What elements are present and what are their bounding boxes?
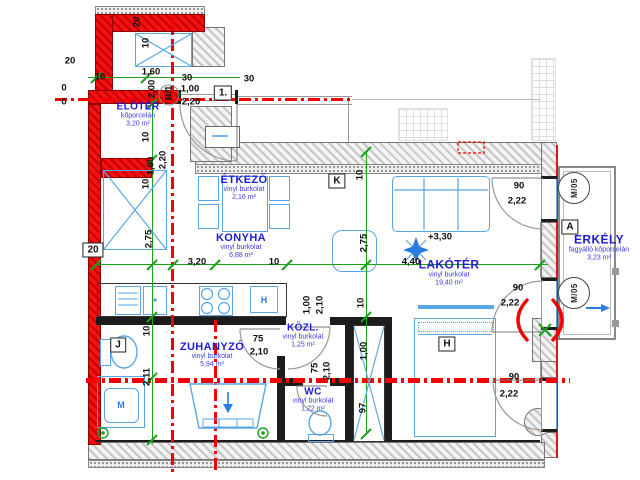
dimension-text: 2,22 [500,389,519,400]
dimension-text: 2,22 [508,196,527,207]
dimension-text: 2,20 [182,97,201,108]
room-label-wc: WCvinyl burkolat1,22 m² [293,387,334,414]
room-area: 19,40 m² [419,280,480,288]
dimension-text: 90 [514,181,525,192]
dimension-text: +3,30 [428,232,452,243]
room-area: 1,22 m² [293,406,334,414]
burner [202,289,213,300]
room-material: vinyl burkolat [180,353,244,361]
dimension-text: 10 [356,298,367,309]
dimension-text: 10 [269,257,280,268]
room-area: 3,20 m² [117,121,160,129]
dimension-text: 1,00 [181,84,200,95]
room-label-erk-ly: ERKÉLYfagyálló kőporcelán3,23 m² [569,233,629,262]
room-label-el-t-r: ELŐTÉRkőporcelán3,20 m² [117,102,160,129]
room-label-lak-t-r: LAKÓTÉRvinyl burkolat19,40 m² [419,258,480,287]
room-area: 1,25 m² [283,342,324,350]
floor-plan: ELŐTÉRkőporcelán3,20 m²ÉTKEZŐvinyl burko… [0,0,640,480]
demolition-arc [518,299,528,341]
dimension-text: 2,10 [315,296,326,315]
room-label-tkez: ÉTKEZŐvinyl burkolat2,16 m² [220,174,267,202]
room-area: 3,23 m² [569,255,629,263]
dimension-text: 2,75 [144,230,155,249]
room-name: ERKÉLY [569,233,629,246]
red-dashed-box [458,142,484,153]
dimension-text: 90 [513,283,524,294]
room-name: WC [293,387,334,398]
dimension-text: 10 [142,326,153,337]
room-material: vinyl burkolat [419,272,480,280]
toilet-wc [309,411,331,435]
room-material: vinyl burkolat [293,398,334,406]
dimension-text: 10 [95,72,106,83]
room-area: 6,88 m² [216,252,266,260]
room-name: ZUHANYZÓ [180,341,244,353]
room-name: KONYHA [216,232,266,244]
dimension-text: 10 [141,179,152,190]
marker-h: H [438,337,455,352]
marker-a: A [561,220,578,235]
shower-arrow-head [223,404,233,413]
marker-m-05: M/05 [558,172,590,204]
dimension-text: 30 [244,74,255,85]
burner [219,303,230,314]
dimension-text: 10 [141,132,152,143]
dimension-text: 20 [132,17,143,28]
dimension-text: 2,20 [158,151,169,170]
entry-door-swing [180,104,237,161]
room-name: LAKÓTÉR [419,258,480,271]
dimension-text: 97 [358,403,369,414]
drain-dot [261,431,265,435]
dimension-text: 20 [65,56,76,67]
room-area: 2,16 m² [220,194,267,202]
dimension-text: B/1 [164,86,175,101]
dimension-text: 2,10 [250,347,269,358]
shower-grate [203,419,253,427]
marker-1: 1. [214,86,232,101]
room-label-zuhanyz: ZUHANYZÓvinyl burkolat5,94 m² [180,341,244,369]
burner [219,289,230,300]
dimension-text: 10 [355,170,366,181]
dimension-text: 30 [182,73,193,84]
balcony-arrow-head [601,304,610,312]
marker-20: 20 [82,243,103,258]
dimension-text: 2,10 [322,362,333,381]
room-area: 5,94 m² [180,361,244,369]
dimension-text: 2,00 [147,80,158,99]
room-name: KÖZL. [283,323,324,334]
dimension-text: 2,11 [142,368,153,386]
dimension-text: 1,00 [359,342,370,361]
room-material: vinyl burkolat [216,244,266,252]
marker-h: H [261,295,268,305]
dimension-text: 10 [141,38,152,49]
marker-m-05: M/05 [558,277,590,309]
marker-m: M [117,400,125,410]
dimension-text: 90 [509,372,520,383]
room-label-konyha: KONYHAvinyl burkolat6,88 m² [216,232,266,260]
dimension-text: 1,00 [302,296,313,315]
dimension-text: 0 [61,83,66,94]
room-material: fagyálló kőporcelán [569,247,629,255]
dimension-text: 1,00 [146,157,157,176]
room-material: vinyl burkolat [220,186,267,194]
dimension-text: 4,40 [402,257,421,268]
dimension-text: 1,60 [142,67,161,78]
cabinet-knob [153,298,157,302]
room-label-k-zl: KÖZL.vinyl burkolat1,25 m² [283,323,324,350]
dimension-text: 2,22 [501,298,520,309]
demolition-arc [552,299,562,341]
room-material: vinyl burkolat [283,334,324,342]
dimension-text: 0 [61,97,66,108]
balcony-door-swing-bottom [493,380,543,430]
room-name: ÉTKEZŐ [220,174,267,186]
dimension-text: 3,20 [188,257,207,268]
room-name: ELŐTÉR [117,102,160,113]
dimension-text: 2,75 [359,234,370,253]
burner [202,303,213,314]
marker-j: J [110,338,126,353]
dimension-text: 75 [253,334,264,345]
marker-k: K [328,174,345,189]
dimension-text: 75 [310,363,321,374]
room-material: kőporcelán [117,113,160,121]
drain-dot [101,431,105,435]
